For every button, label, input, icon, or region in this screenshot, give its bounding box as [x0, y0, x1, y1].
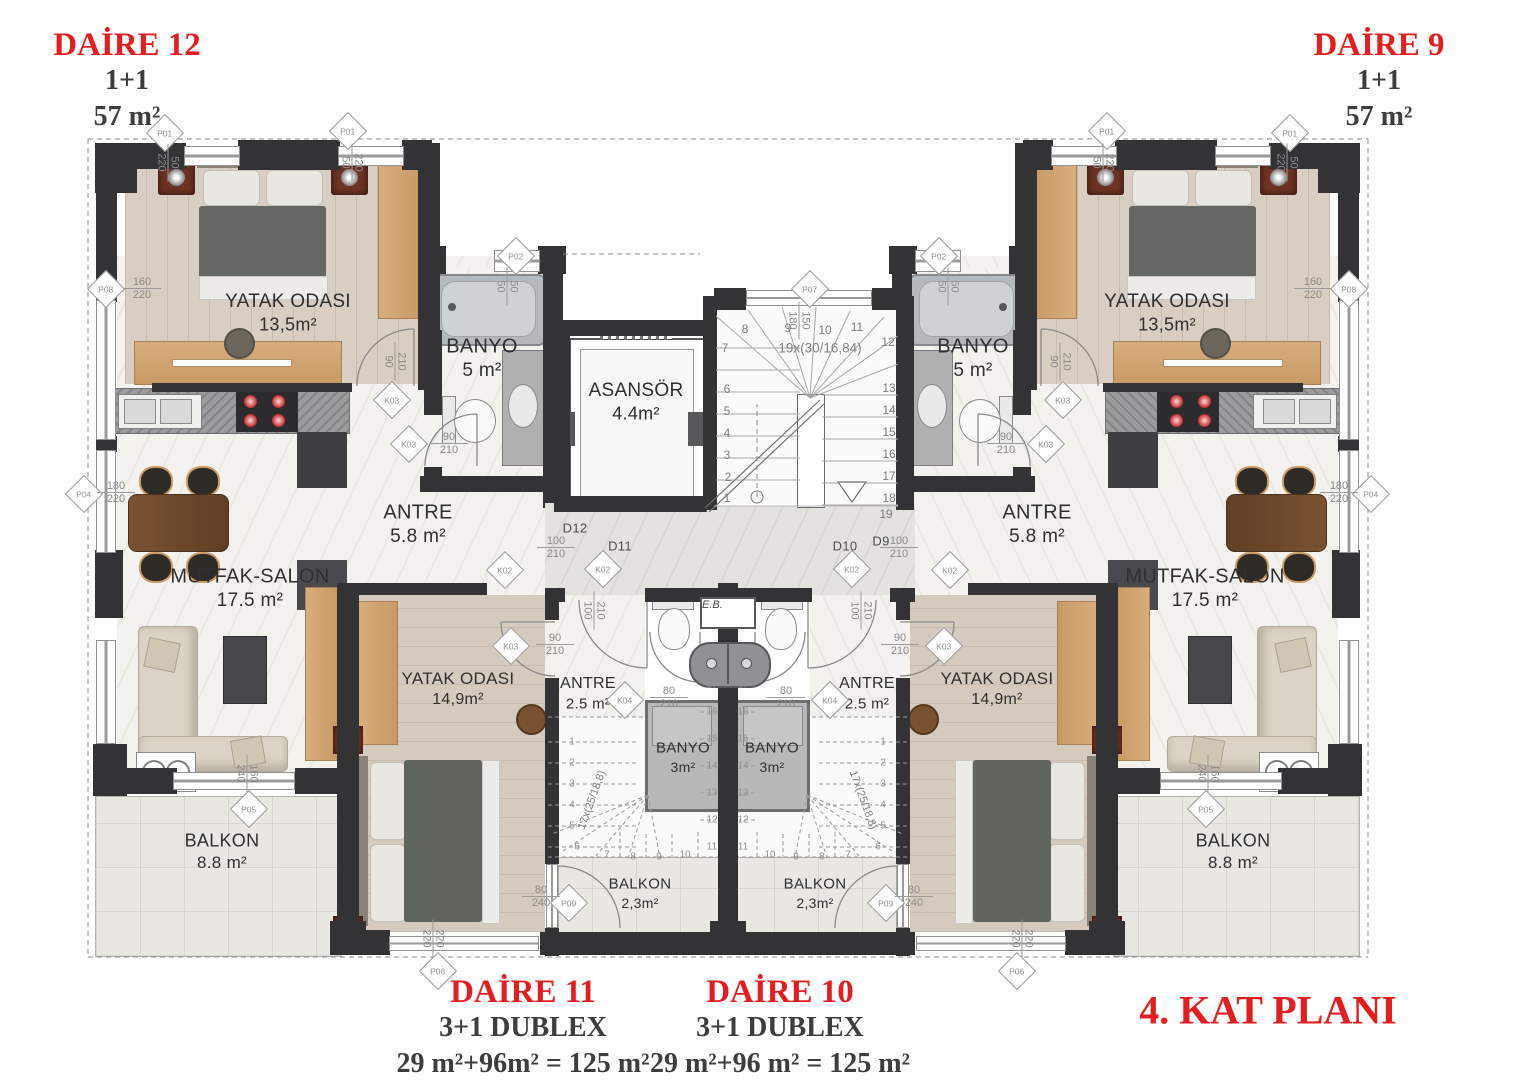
stair-step-number: 16 — [881, 447, 897, 461]
apartment-area: 29 m²+96 m² = 125 m² — [650, 1046, 910, 1080]
room-area-label: 8.8 m² — [1208, 853, 1258, 873]
duplex-step-number: 3 — [875, 779, 891, 790]
room-label: YATAK ODASI — [941, 669, 1054, 689]
door-label-d10: D10 — [833, 539, 858, 554]
tag-k03-diamond: K03 — [1044, 381, 1082, 419]
stair-step-number: 9 — [780, 321, 796, 335]
room-label: ANTRE — [383, 502, 452, 525]
dim-w90_210: 90210 — [536, 632, 574, 657]
tag-k02-diamond: K02 — [931, 551, 969, 589]
room-label: MUTFAK-SALON — [1125, 566, 1284, 589]
dim-w180_220: 180220 — [97, 480, 135, 505]
room-area-label: 5 m² — [953, 360, 992, 382]
duplex-step-number: 15 — [735, 734, 751, 745]
dim-w210_90: 21090 — [383, 343, 408, 381]
room-label: MUTFAK-SALON — [170, 566, 329, 589]
room-label: ASANSÖR — [588, 380, 683, 402]
tag-k02-diamond: K02 — [486, 551, 524, 589]
stair-step-number: 11 — [849, 320, 865, 334]
room-label: YATAK ODASI — [1104, 291, 1230, 313]
duplex-step-number: 7 — [840, 850, 856, 861]
room-label: YATAK ODASI — [225, 291, 351, 313]
duplex-step-number: 14 — [704, 761, 720, 772]
duplex-step-number: 9 — [651, 852, 667, 863]
dim-w100_210: 100210 — [537, 535, 575, 560]
room-label: BANYO — [937, 336, 1009, 359]
apartment-name: DAİRE 12 — [53, 27, 201, 63]
tag-p06-diamond: P06 — [998, 952, 1036, 990]
stair-step-number: 3 — [719, 448, 735, 462]
apartment-area: 29 m²+96m² = 125 m² — [396, 1046, 649, 1080]
apartment-type: 1+1 — [53, 63, 201, 99]
duplex-step-number: 4 — [564, 800, 580, 811]
plan-title: 4. KAT PLANI — [1139, 987, 1396, 1034]
duplex-step-number: 7 — [599, 850, 615, 861]
dim-w160_240: 160240 — [1196, 755, 1221, 793]
duplex-step-number: 10 — [677, 850, 693, 861]
tag-p05-diamond: P05 — [1187, 790, 1225, 828]
tag-k03-diamond: K03 — [492, 627, 530, 665]
door-label-d11: D11 — [608, 539, 632, 554]
room-label: ANTRE — [839, 675, 895, 693]
room-label: ANTRE — [560, 675, 616, 693]
duplex-step-number: 1 — [564, 737, 580, 748]
tag-k02-diamond: K02 — [833, 550, 871, 588]
dim-w210_100: 210100 — [849, 592, 874, 630]
stair-step-number: 12 — [880, 335, 896, 349]
duplex-step-number: 2 — [564, 758, 580, 769]
main-stair-note: 19x(30/16,84) — [778, 341, 861, 356]
dim-w80_240: 80240 — [895, 884, 933, 909]
dim-w160_220: 160220 — [123, 276, 161, 301]
stair-step-number: 17 — [881, 469, 897, 483]
duplex-step-number: 9 — [788, 852, 804, 863]
apartment-area: 57 m² — [1313, 99, 1444, 135]
room-label: BALKON — [784, 876, 847, 893]
apartment-type: 3+1 DUBLEX — [396, 1010, 649, 1046]
duplex-step-number: 14 — [735, 761, 751, 772]
apartment-title-daire10: DAİRE 10 3+1 DUBLEX 29 m²+96 m² = 125 m² — [650, 974, 910, 1080]
stair-step-number: 5 — [719, 404, 735, 418]
door-label-d12: D12 — [563, 521, 588, 536]
stair-step-number: 1 — [719, 491, 735, 505]
room-area-label: 4.4m² — [612, 404, 660, 425]
room-area-label: 3m² — [759, 759, 784, 775]
duplex-step-number: 13 — [704, 788, 720, 799]
room-area-label: 13,5m² — [259, 315, 317, 336]
stair-step-number: 13 — [881, 381, 897, 395]
floor-plan: E.B. — [0, 0, 1527, 1080]
room-area-label: 14,9m² — [971, 691, 1023, 709]
apartment-name: DAİRE 9 — [1313, 27, 1444, 63]
dim-w50_220: 50220 — [1275, 144, 1300, 182]
dim-w50_50: 5050 — [936, 268, 961, 306]
duplex-step-number: 11 — [735, 842, 751, 853]
stair-step-number: 6 — [719, 382, 735, 396]
tag-k03-diamond: K03 — [390, 425, 428, 463]
duplex-step-number: 4 — [875, 800, 891, 811]
room-label: BALKON — [609, 876, 672, 893]
dim-w220_220: 220220 — [1010, 920, 1035, 958]
duplex-step-number: 6 — [569, 842, 585, 853]
stair-step-number: 8 — [737, 322, 753, 336]
room-area-label: 13,5m² — [1138, 315, 1196, 336]
duplex-step-number: 17 — [704, 680, 720, 691]
room-area-label: 2,3m² — [796, 895, 833, 911]
duplex-step-number: 12 — [735, 815, 751, 826]
room-area-label: 17.5 m² — [1172, 590, 1239, 612]
room-area-label: 2.5 m² — [566, 696, 610, 713]
stair-step-number: 10 — [817, 323, 833, 337]
tag-p08-diamond: P08 — [87, 270, 125, 308]
duplex-step-number: 6 — [870, 842, 886, 853]
tag-k03-diamond: K03 — [1027, 425, 1065, 463]
dim-w180_220: 180220 — [1320, 480, 1358, 505]
dim-w50_50: 5050 — [495, 268, 520, 306]
duplex-step-number: 2 — [875, 758, 891, 769]
apartment-title-daire11: DAİRE 11 3+1 DUBLEX 29 m²+96m² = 125 m² — [396, 974, 649, 1080]
stair-step-number: 2 — [720, 470, 736, 484]
duplex-step-number: 12 — [704, 815, 720, 826]
dim-w220_50: 22050 — [340, 144, 365, 182]
dim-w100_210: 100210 — [880, 535, 918, 560]
annotation-layer: YATAK ODASI13,5m²YATAK ODASI13,5m²BANYO5… — [0, 0, 1527, 1080]
room-area-label: 17.5 m² — [217, 590, 284, 612]
dim-w50_220: 50220 — [156, 144, 181, 182]
duplex-stair-note: 17x(25/18,8) — [576, 769, 608, 831]
dim-w90_210: 90210 — [987, 431, 1025, 456]
dim-w160_240: 160240 — [235, 755, 260, 793]
dim-w80_240: 80240 — [522, 884, 560, 909]
tag-k03-diamond: K03 — [373, 381, 411, 419]
duplex-step-number: 17 — [735, 680, 751, 691]
duplex-step-number: 16 — [735, 707, 751, 718]
room-area-label: 2,3m² — [621, 895, 658, 911]
duplex-step-number: 1 — [875, 737, 891, 748]
apartment-title-daire12: DAİRE 12 1+1 57 m² — [53, 27, 201, 135]
apartment-title-daire9: DAİRE 9 1+1 57 m² — [1313, 27, 1444, 135]
duplex-step-number: 15 — [704, 734, 720, 745]
duplex-step-number: 13 — [735, 788, 751, 799]
room-area-label: 14,9m² — [432, 691, 484, 709]
apartment-area: 57 m² — [53, 99, 201, 135]
dim-w220_220: 220220 — [421, 920, 446, 958]
room-area-label: 8.8 m² — [197, 853, 247, 873]
dim-w80_210: 80210 — [650, 685, 688, 710]
dim-w80_210: 80210 — [767, 685, 805, 710]
duplex-step-number: 16 — [704, 707, 720, 718]
apartment-type: 1+1 — [1313, 63, 1444, 99]
duplex-step-number: 3 — [564, 779, 580, 790]
room-label: BANYO — [446, 336, 518, 359]
apartment-name: DAİRE 11 — [396, 974, 649, 1010]
room-area-label: 5 m² — [462, 360, 501, 382]
tag-p05-diamond: P05 — [230, 790, 268, 828]
room-area-label: 3m² — [670, 759, 695, 775]
room-area-label: 5.8 m² — [390, 526, 446, 548]
room-label: BANYO — [656, 740, 710, 757]
dim-w90_210: 90210 — [430, 431, 468, 456]
stair-step-number: 4 — [719, 426, 735, 440]
tag-k02-diamond: K02 — [584, 550, 622, 588]
duplex-step-number: 8 — [814, 852, 830, 863]
apartment-name: DAİRE 10 — [650, 974, 910, 1010]
tag-p08-diamond: P08 — [1330, 270, 1368, 308]
duplex-step-number: 10 — [762, 850, 778, 861]
room-area-label: 2.5 m² — [845, 696, 889, 713]
dim-w220_50: 22050 — [1091, 144, 1116, 182]
dim-w90_210: 90210 — [881, 632, 919, 657]
stair-step-number: 18 — [881, 491, 897, 505]
tag-k03-diamond: K03 — [925, 627, 963, 665]
room-label: BALKON — [1196, 831, 1271, 852]
room-label: BALKON — [185, 831, 260, 852]
dim-w160_220: 160220 — [1294, 276, 1332, 301]
apartment-type: 3+1 DUBLEX — [650, 1010, 910, 1046]
room-label: BANYO — [745, 740, 799, 757]
dim-w210_90: 21090 — [1048, 343, 1073, 381]
room-label: ANTRE — [1002, 502, 1071, 525]
stair-step-number: 7 — [717, 341, 733, 355]
stair-step-number: 15 — [881, 425, 897, 439]
duplex-step-number: 8 — [625, 852, 641, 863]
stair-step-number: 19 — [878, 507, 894, 521]
dim-w210_100: 210100 — [582, 592, 607, 630]
room-area-label: 5.8 m² — [1009, 526, 1065, 548]
room-label: YATAK ODASI — [402, 669, 515, 689]
duplex-step-number: 11 — [704, 842, 720, 853]
stair-step-number: 14 — [881, 403, 897, 417]
